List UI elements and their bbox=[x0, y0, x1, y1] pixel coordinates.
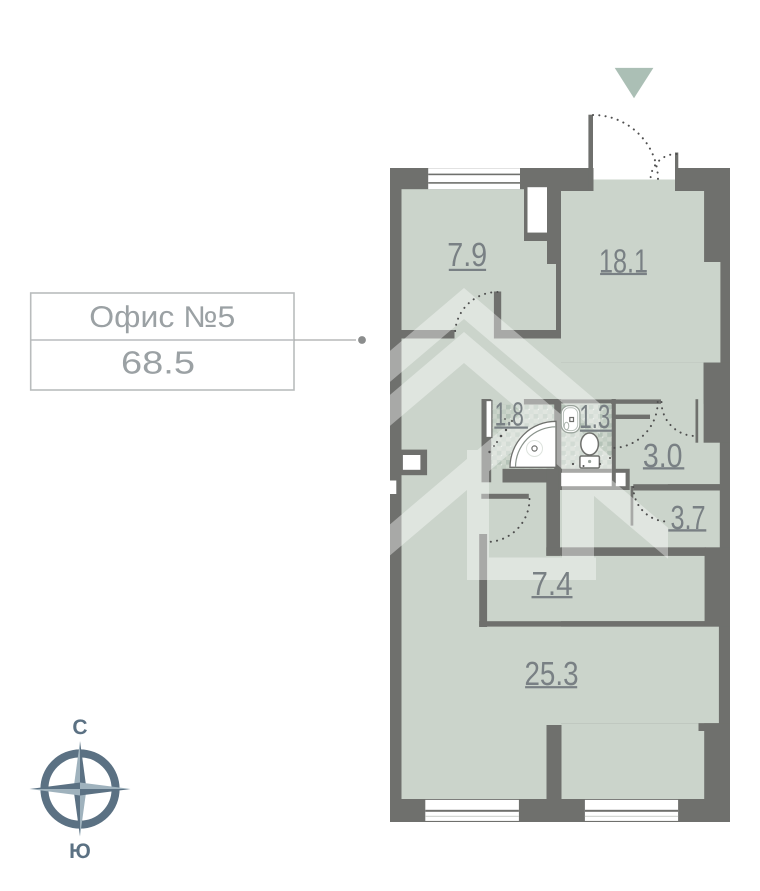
svg-text:7.9: 7.9 bbox=[447, 237, 487, 274]
svg-text:68.5: 68.5 bbox=[121, 345, 195, 381]
svg-text:Ю: Ю bbox=[69, 840, 91, 863]
svg-text:С: С bbox=[72, 716, 87, 739]
svg-text:Офис №5: Офис №5 bbox=[89, 301, 235, 334]
